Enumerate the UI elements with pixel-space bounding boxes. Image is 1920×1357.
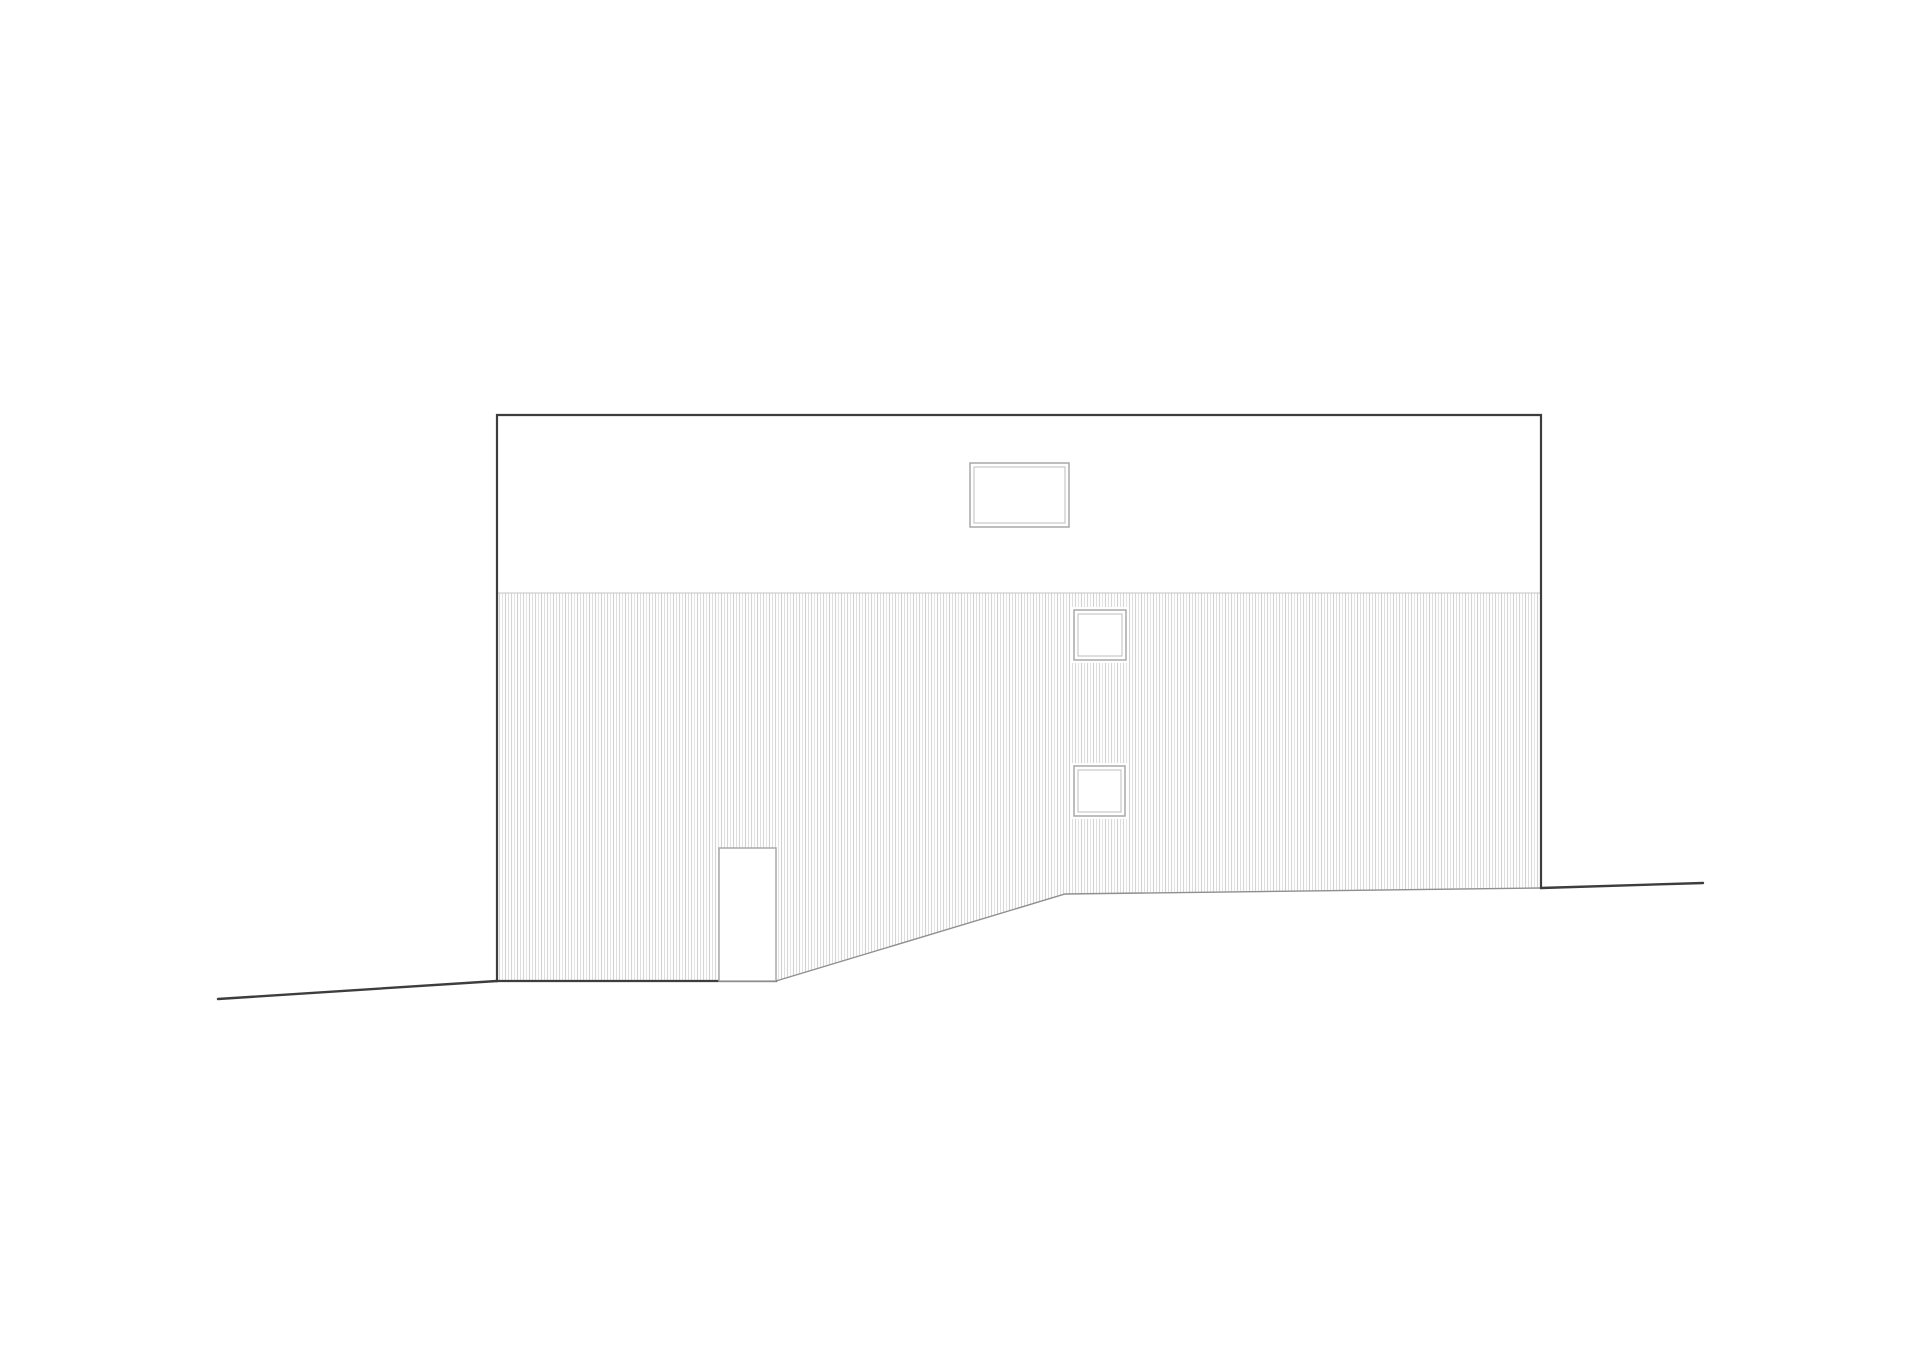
square-window-lower bbox=[1071, 763, 1128, 819]
ground-line-left bbox=[218, 981, 497, 999]
square-window-upper-outer-frame bbox=[1074, 610, 1126, 660]
clerestory-window bbox=[970, 463, 1069, 527]
clerestory-window-outer-frame bbox=[970, 463, 1069, 527]
elevation-drawing-canvas bbox=[0, 0, 1920, 1357]
elevation-drawing bbox=[0, 0, 1920, 1357]
square-window-lower-outer-frame bbox=[1074, 766, 1125, 816]
entry-door bbox=[719, 848, 776, 981]
ground-line-right bbox=[1541, 883, 1703, 888]
corrugated-wall-face bbox=[497, 593, 1541, 981]
square-window-upper bbox=[1071, 607, 1129, 663]
